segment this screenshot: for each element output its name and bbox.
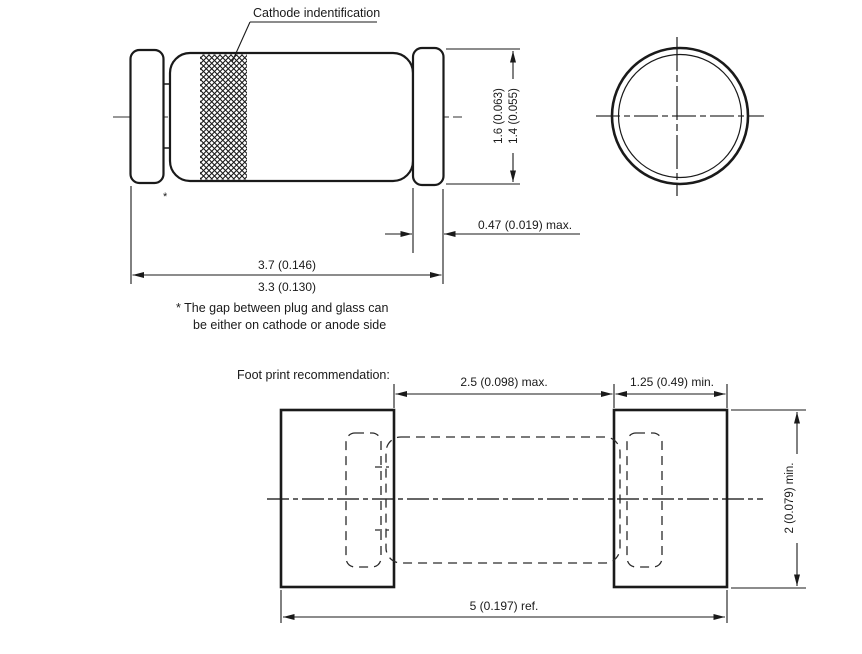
dim-diameter-inner: 1.4 (0.055)	[508, 88, 520, 144]
dim-pad-height: 2 (0.079) min.	[784, 463, 796, 534]
cathode-callout-label: Cathode indentification	[253, 6, 380, 20]
ghost-right-cap	[627, 433, 662, 567]
right-end-cap	[413, 48, 444, 185]
gap-asterisk: *	[163, 191, 168, 203]
drawing-svg: * Cathode indentification 1.6 (0.063) 1.…	[0, 0, 862, 654]
dim-diameter-outer: 1.6 (0.063)	[493, 88, 505, 144]
cathode-band-hatch	[200, 55, 247, 180]
left-end-cap	[131, 50, 164, 183]
footprint-heading: Foot print recommendation:	[237, 368, 390, 382]
side-view	[113, 48, 462, 185]
dim-length-max: 3.7 (0.146)	[258, 258, 316, 272]
dim-length-min: 3.3 (0.130)	[258, 280, 316, 294]
dim-pad-gap: 2.5 (0.098) max.	[460, 375, 547, 389]
package-dimension-drawing: * Cathode indentification 1.6 (0.063) 1.…	[0, 0, 862, 654]
ghost-body	[386, 437, 620, 563]
dim-cap-width: 0.47 (0.019) max.	[478, 218, 572, 232]
end-view	[596, 37, 764, 196]
footprint-view	[267, 384, 806, 623]
ghost-left-cap	[346, 433, 381, 567]
dim-pad-width: 1.25 (0.49) min.	[630, 375, 714, 389]
gap-note-line2: be either on cathode or anode side	[193, 318, 386, 332]
dim-overall-length: 5 (0.197) ref.	[470, 599, 539, 613]
gap-note-line1: * The gap between plug and glass can	[176, 301, 388, 315]
cap-width-dimension	[385, 188, 580, 284]
